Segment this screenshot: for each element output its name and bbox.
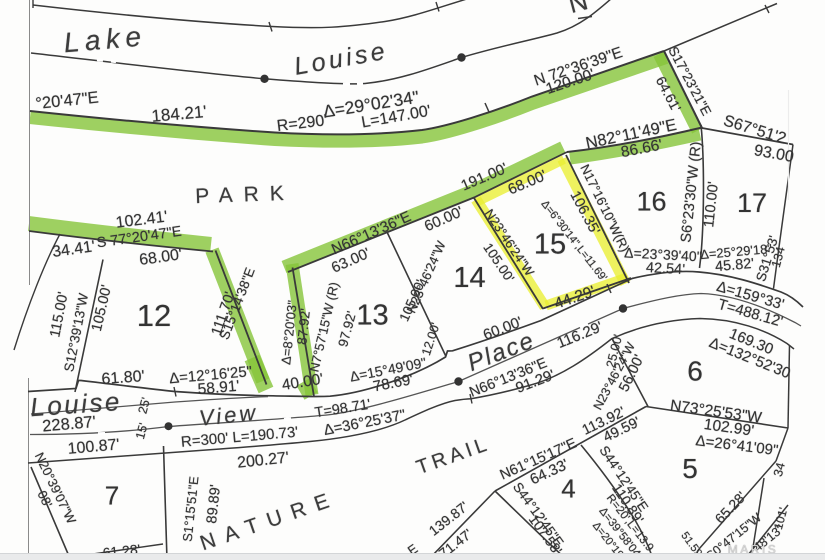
svg-text:4: 4 — [561, 474, 575, 504]
svg-text:6: 6 — [687, 355, 703, 386]
svg-text:13: 13 — [356, 300, 388, 332]
svg-text:17: 17 — [737, 188, 767, 218]
svg-text:12: 12 — [137, 298, 171, 333]
svg-text:15: 15 — [534, 229, 566, 261]
svg-text:5: 5 — [682, 453, 698, 484]
svg-text:58.91': 58.91' — [197, 378, 240, 399]
svg-text:45.82': 45.82' — [714, 256, 755, 275]
svg-text:61.80': 61.80' — [101, 368, 145, 388]
svg-text:PARK: PARK — [195, 182, 295, 208]
svg-text:14: 14 — [453, 262, 485, 294]
svg-text:42.54': 42.54' — [646, 260, 686, 278]
svg-text:16: 16 — [636, 186, 666, 216]
svg-text:7: 7 — [105, 481, 119, 511]
